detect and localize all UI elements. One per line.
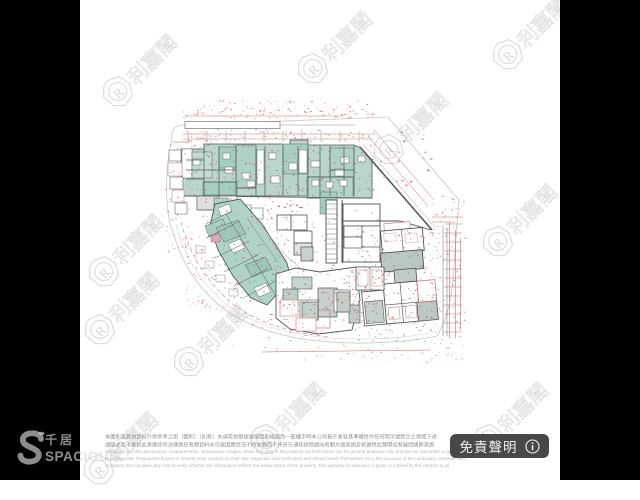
svg-text:千居: 千居 xyxy=(45,432,75,447)
